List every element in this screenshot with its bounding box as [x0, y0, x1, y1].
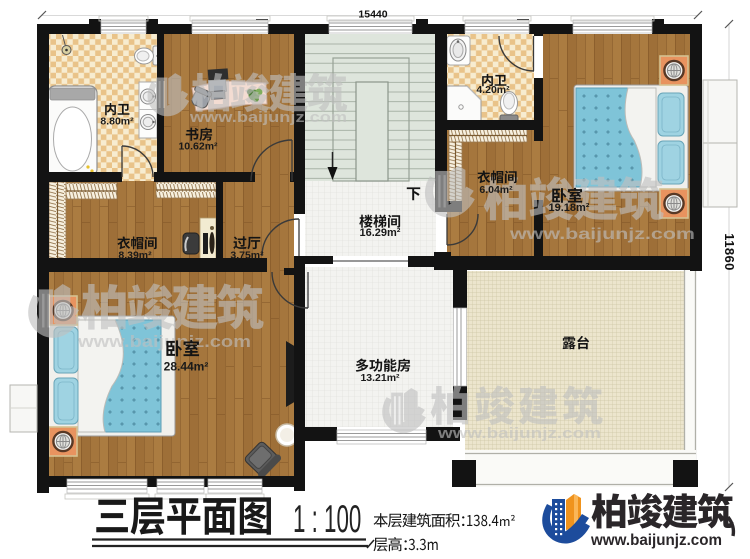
svg-text:www.baijunjz.com: www.baijunjz.com — [590, 532, 722, 549]
svg-text:6.04m²: 6.04m² — [479, 184, 513, 196]
svg-text:13.21m²: 13.21m² — [360, 372, 400, 384]
svg-text:15440: 15440 — [358, 9, 387, 21]
svg-text:8.39m²: 8.39m² — [118, 250, 152, 262]
svg-text:11860: 11860 — [722, 233, 737, 270]
svg-text:16.29m²: 16.29m² — [360, 227, 401, 239]
svg-text:10.62m²: 10.62m² — [178, 141, 218, 153]
svg-text:www.baijunjz.com: www.baijunjz.com — [509, 226, 695, 243]
svg-text:8.80m²: 8.80m² — [100, 116, 134, 128]
svg-text:www.baijunjz.com: www.baijunjz.com — [77, 332, 251, 351]
svg-text:www.baijunjz.com: www.baijunjz.com — [437, 425, 601, 442]
svg-text:3.75m²: 3.75m² — [230, 250, 264, 262]
svg-text:1 : 100: 1 : 100 — [293, 498, 361, 541]
svg-text:4.20m²: 4.20m² — [476, 84, 510, 96]
svg-text:19.18m²: 19.18m² — [549, 202, 590, 214]
svg-text:28.44m²: 28.44m² — [164, 360, 209, 374]
svg-text:www.baijunjz.com: www.baijunjz.com — [189, 110, 347, 126]
